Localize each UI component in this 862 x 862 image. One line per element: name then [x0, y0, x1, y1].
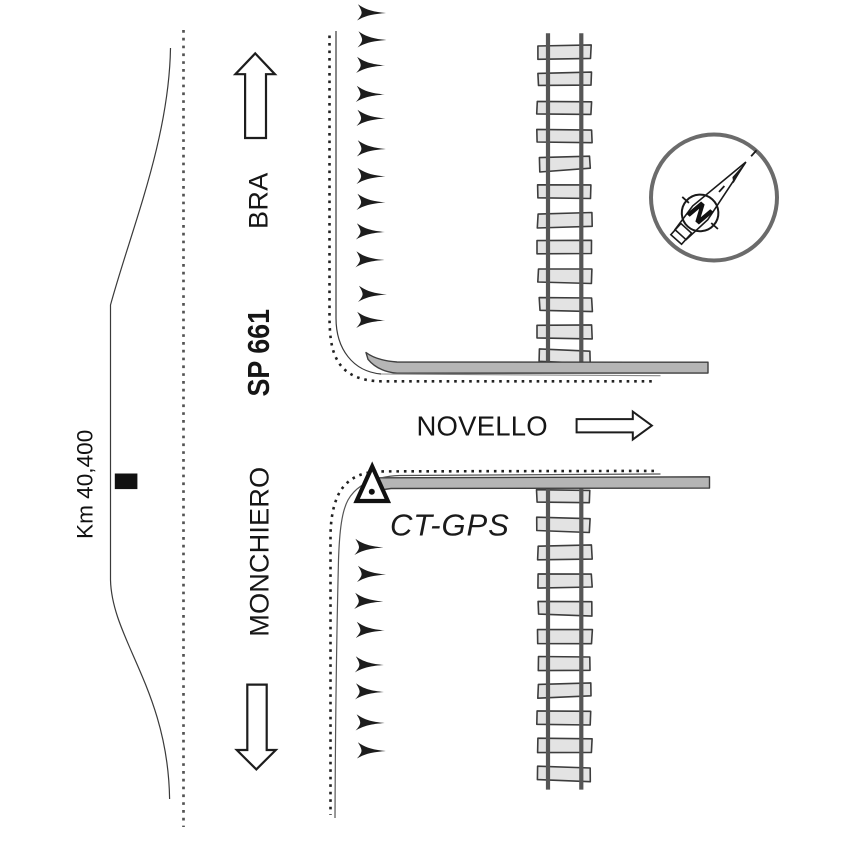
svg-text:Km 40,400: Km 40,400 [73, 430, 98, 539]
svg-text:SP 661: SP 661 [242, 309, 276, 397]
svg-text:NOVELLO: NOVELLO [417, 411, 548, 442]
svg-text:CT-GPS: CT-GPS [390, 508, 510, 543]
svg-text:MONCHIERO: MONCHIERO [244, 467, 275, 637]
svg-text:BRA: BRA [244, 172, 274, 229]
